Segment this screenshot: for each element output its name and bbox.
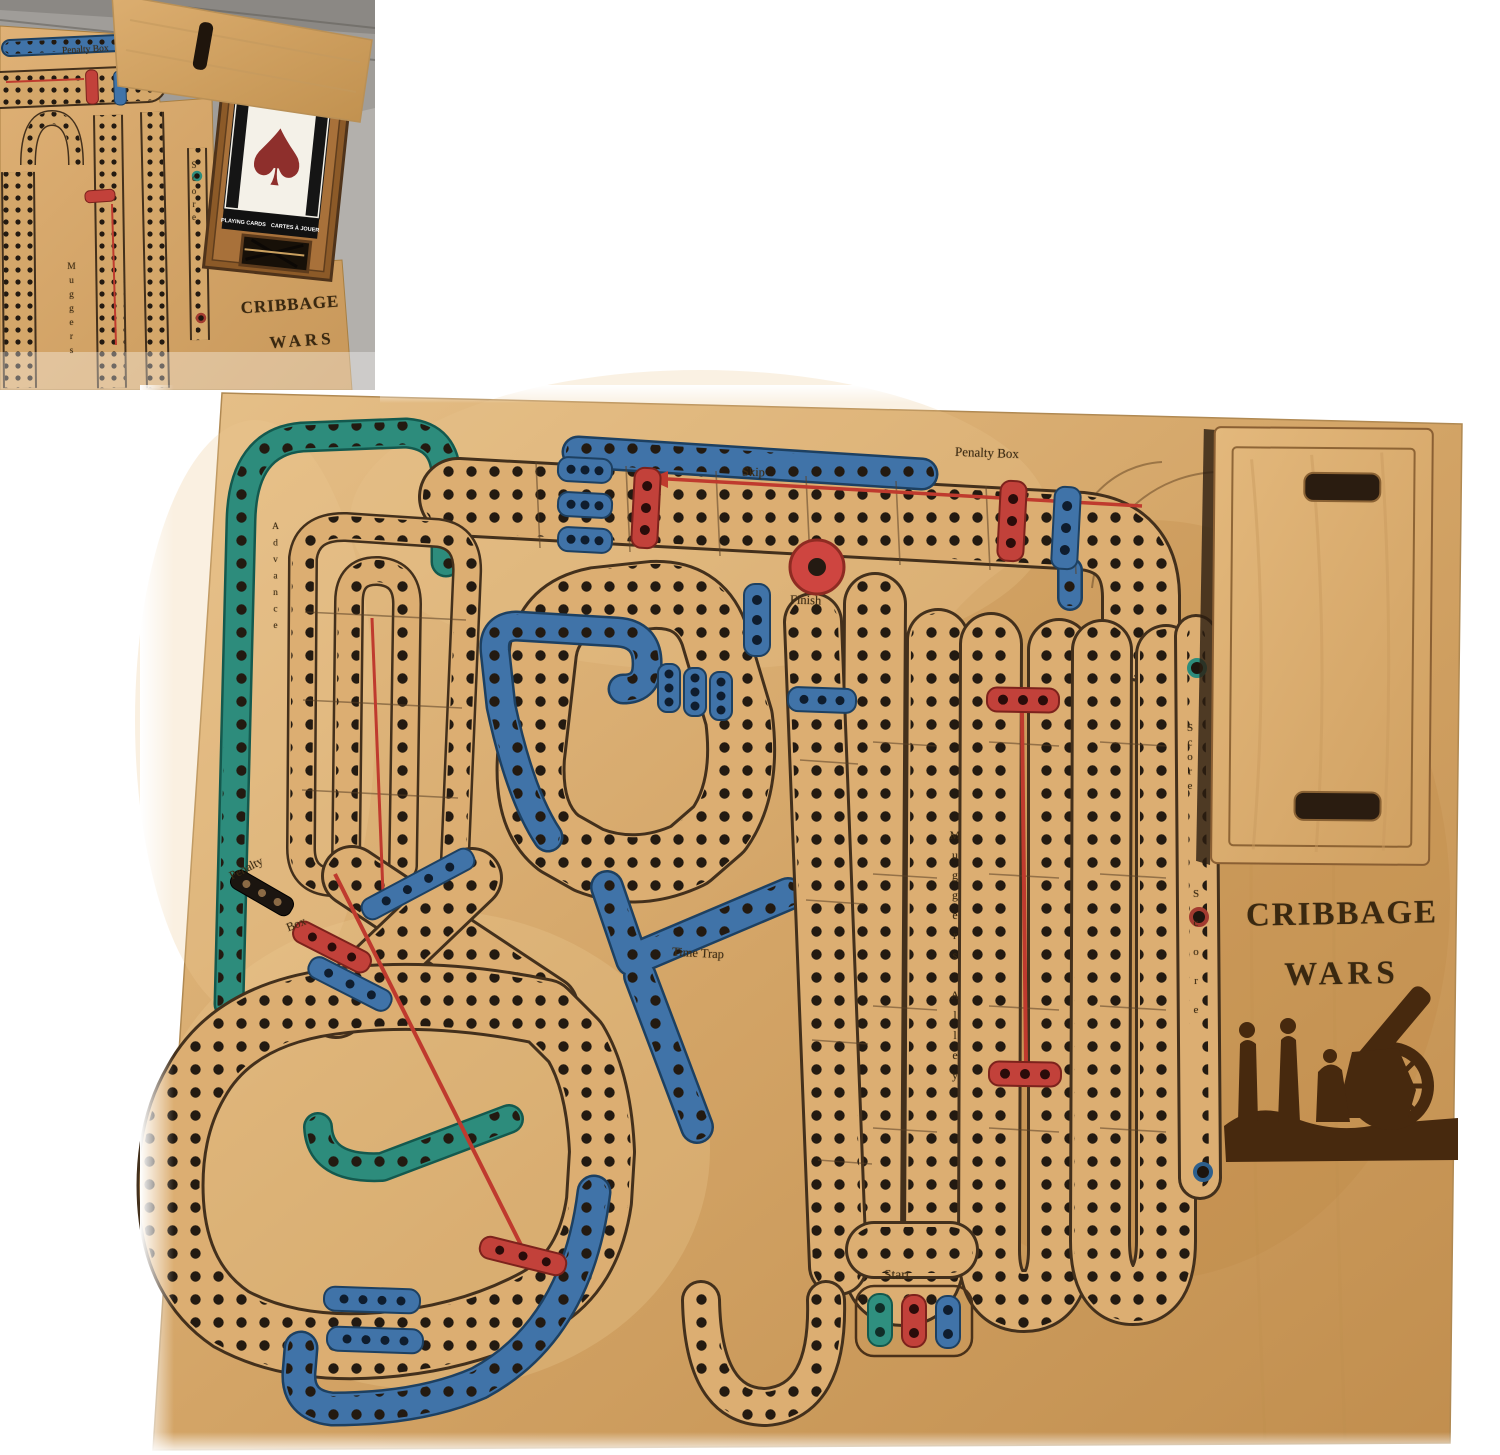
product-photo-page: ♠ PLAYING CARDS CARTES À JOUER Penalty B… bbox=[0, 0, 1500, 1455]
inset-muggers-label: Muggers bbox=[66, 262, 76, 360]
start-label: Start bbox=[884, 1268, 910, 1282]
board-title-line1: CRIBBAGE bbox=[1232, 896, 1453, 933]
ace-of-spades-icon: ♠ bbox=[238, 111, 317, 208]
penalty-box-top-label: Penalty Box bbox=[955, 445, 1019, 460]
time-trap-label: Time Trap bbox=[672, 946, 725, 961]
inset-score-label: Score bbox=[189, 160, 198, 225]
card-storage-box bbox=[1196, 427, 1433, 867]
start-area bbox=[856, 1286, 972, 1356]
muggers-alley-track bbox=[871, 604, 938, 1295]
finish-column-track bbox=[813, 622, 838, 1266]
score-lower-label: Score bbox=[1190, 888, 1201, 1033]
score-upper-label: Score bbox=[1184, 722, 1195, 795]
muggers-alley-label: Muggers Alley bbox=[949, 828, 961, 1088]
board-title-line2: WARS bbox=[1232, 956, 1453, 993]
finish-label: Finish bbox=[790, 593, 822, 607]
finish-disc bbox=[790, 540, 844, 594]
advance-label: Advance bbox=[270, 522, 280, 638]
skip-label: Skip bbox=[742, 466, 765, 479]
box-bottom-slot bbox=[1294, 792, 1380, 821]
box-top-slot bbox=[1304, 473, 1380, 502]
